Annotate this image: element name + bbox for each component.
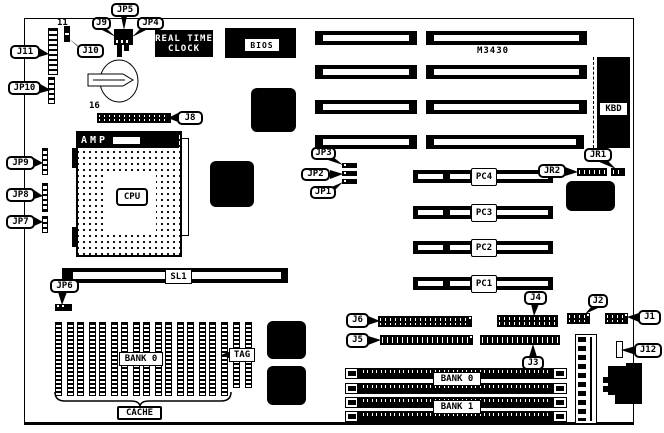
callout-j10: J10 bbox=[77, 44, 104, 58]
callout-j5: J5 bbox=[346, 333, 369, 348]
callout-jp7: JP7 bbox=[6, 215, 35, 229]
callout-j6: J6 bbox=[346, 313, 369, 328]
callout-jp5: JP5 bbox=[111, 3, 139, 17]
callout-pointers bbox=[0, 0, 664, 433]
callout-j12: J12 bbox=[634, 343, 662, 358]
callout-jr2: JR2 bbox=[538, 164, 566, 178]
callout-jp1: JP1 bbox=[310, 186, 336, 199]
callout-jp4: JP4 bbox=[137, 17, 164, 30]
callout-j11: J11 bbox=[10, 45, 40, 59]
callout-j9: J9 bbox=[92, 17, 111, 30]
cache-bank0-label: BANK 0 bbox=[119, 352, 163, 366]
callout-jp10: JP10 bbox=[8, 81, 41, 95]
bank0-label: BANK 0 bbox=[433, 372, 481, 386]
callout-jp9: JP9 bbox=[6, 156, 35, 170]
callout-jp6: JP6 bbox=[50, 279, 79, 293]
callout-j2: J2 bbox=[588, 294, 608, 308]
callout-jp3: JP3 bbox=[311, 147, 336, 160]
callout-j1: J1 bbox=[638, 310, 661, 325]
callout-jp2: JP2 bbox=[301, 168, 330, 181]
cache-label: CACHE bbox=[117, 406, 162, 420]
callout-j8: J8 bbox=[177, 111, 203, 125]
bank1-label: BANK 1 bbox=[433, 400, 481, 414]
callout-jp8: JP8 bbox=[6, 188, 35, 202]
callout-j4: J4 bbox=[524, 291, 547, 305]
motherboard-diagram: 11 J11 J10 JP10 JP5 J9 JP4 REAL TIME CLO… bbox=[0, 0, 664, 433]
tag-label: TAG bbox=[229, 348, 255, 362]
callout-j3: J3 bbox=[522, 356, 544, 370]
callout-jr1: JR1 bbox=[584, 148, 612, 162]
